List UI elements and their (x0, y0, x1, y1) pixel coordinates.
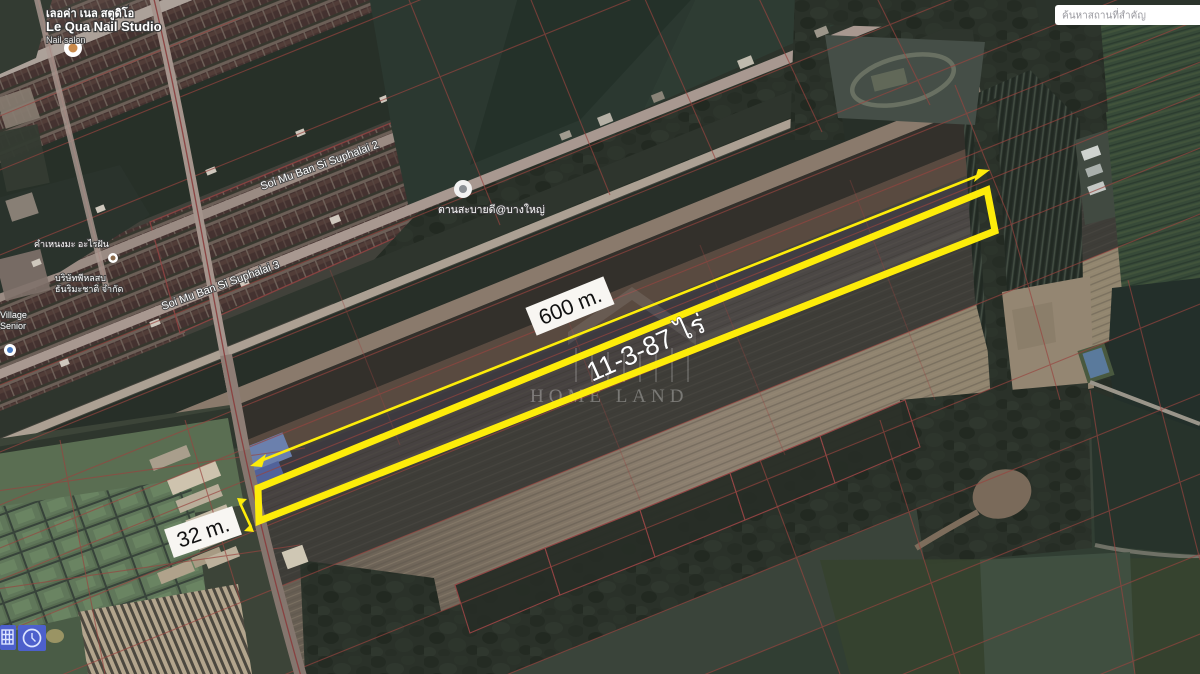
svg-text:บริษัทพีหลสบ: บริษัทพีหลสบ (55, 273, 106, 283)
svg-text:ค้นหาสถานที่สำคัญ: ค้นหาสถานที่สำคัญ (1062, 8, 1146, 22)
svg-text:Senior: Senior (0, 321, 26, 331)
svg-text:คำเหนงมะ อะไรฝัน: คำเหนงมะ อะไรฝัน (34, 239, 109, 249)
svg-text:Village: Village (0, 310, 27, 320)
svg-text:Nail salon: Nail salon (46, 35, 86, 45)
svg-text:ธันริมะชาติ จำกัด: ธันริมะชาติ จำกัด (55, 284, 124, 294)
svg-text:ตานสะบายดี@บางใหญ่: ตานสะบายดี@บางใหญ่ (438, 203, 545, 216)
svg-text:Le Qua Nail Studio: Le Qua Nail Studio (46, 19, 162, 34)
